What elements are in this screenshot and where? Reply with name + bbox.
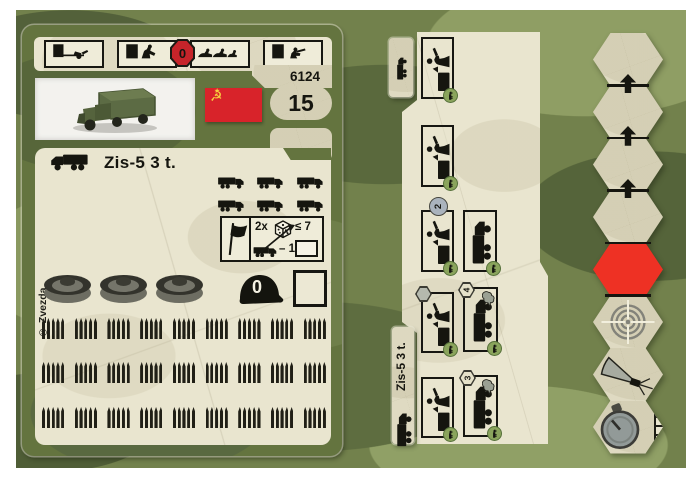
badge-value: 3 <box>462 376 472 381</box>
ammo-round <box>225 407 228 428</box>
flag-icon <box>222 218 251 260</box>
ammo-round <box>206 318 209 339</box>
ammo-round <box>47 318 50 339</box>
ammo-round <box>56 362 59 383</box>
ammo-round <box>159 407 162 428</box>
ammo-round <box>313 407 316 428</box>
result-box <box>295 240 318 257</box>
ammo-round <box>323 407 326 428</box>
ammo-round <box>308 318 311 339</box>
smoke-icon <box>482 379 495 396</box>
action-box-crawl <box>190 40 250 68</box>
ammo-round <box>140 318 143 339</box>
ammo-round <box>318 362 321 383</box>
ammo-group <box>173 407 195 429</box>
ammo-group <box>304 362 326 384</box>
ammo-round <box>52 362 55 383</box>
transport-capacity-icons <box>215 175 328 217</box>
ammo-round <box>52 407 55 428</box>
ammo-round <box>187 362 190 383</box>
truck-icon <box>215 175 249 194</box>
order-action-box-2 <box>421 125 454 187</box>
ammo-group <box>238 318 260 340</box>
ammo-round <box>238 318 241 339</box>
ammo-round <box>173 362 176 383</box>
load-icon <box>413 395 463 421</box>
ammo-round <box>313 362 316 383</box>
ammo-round <box>318 318 321 339</box>
octagon-value: 0 <box>172 41 193 65</box>
ammo-round <box>117 362 120 383</box>
truck-icon <box>253 244 278 255</box>
ammo-round <box>187 407 190 428</box>
load-icon <box>413 55 463 81</box>
modifier-value: – 1 <box>279 243 295 255</box>
ammo-round <box>192 407 195 428</box>
ammo-round <box>75 362 78 383</box>
ammo-round <box>75 407 78 428</box>
ammo-round <box>122 362 125 383</box>
model-photo <box>35 78 195 140</box>
ammo-round <box>178 362 181 383</box>
push-icon <box>121 43 173 64</box>
ammo-round <box>308 407 311 428</box>
ammo-round <box>89 318 92 339</box>
red-hex-edge-line <box>605 294 651 297</box>
ammo-round <box>318 407 321 428</box>
cover-icon <box>267 43 319 64</box>
ammo-round <box>280 407 283 428</box>
circle-badge: 2 <box>429 197 448 216</box>
truck-icon <box>458 395 504 418</box>
points-value: 15 <box>288 90 314 117</box>
order-action-box-1 <box>421 37 454 99</box>
ammo-group <box>107 407 129 429</box>
ammo-round <box>56 407 59 428</box>
ammo-round <box>127 362 130 383</box>
green-dot-truck-icon <box>487 426 502 441</box>
ammo-row <box>42 362 326 384</box>
ammo-round <box>220 362 223 383</box>
arrow-up-icon <box>619 126 637 148</box>
ammo-round <box>257 407 260 428</box>
ammo-round <box>276 362 279 383</box>
dice-multiplier: 2x <box>255 221 268 233</box>
helmet-value: 0 <box>252 277 262 298</box>
ammo-round <box>225 362 228 383</box>
ammo-round <box>238 362 241 383</box>
ammo-round <box>112 407 115 428</box>
ammo-round <box>210 318 213 339</box>
set-number: 6124 <box>290 69 320 84</box>
ammo-round <box>154 407 157 428</box>
ammo-round <box>178 318 181 339</box>
ammo-round <box>173 318 176 339</box>
ammo-round <box>79 318 82 339</box>
punchboard-sheet: 0 6124 ★ ☭ 15 <box>0 0 700 480</box>
ammo-round <box>215 362 218 383</box>
ammo-round <box>276 407 279 428</box>
badge-value: 2 <box>433 204 444 209</box>
ammo-round <box>192 362 195 383</box>
ammo-group <box>206 318 228 340</box>
ammo-round <box>182 318 185 339</box>
ammo-round <box>187 318 190 339</box>
ammo-round <box>271 318 274 339</box>
ammo-round <box>61 318 64 339</box>
load-icon <box>413 310 463 336</box>
ammo-group <box>304 318 326 340</box>
ammo-round <box>210 362 213 383</box>
order-card-top-tab <box>389 38 413 97</box>
ammo-round <box>304 407 307 428</box>
wheel-token <box>100 275 147 303</box>
ammo-group <box>173 362 195 384</box>
ammo-round <box>75 318 78 339</box>
ammo-round <box>308 362 311 383</box>
ammo-round <box>145 407 148 428</box>
truck-icon <box>254 198 288 217</box>
ammo-round <box>150 407 153 428</box>
ammo-round <box>178 407 181 428</box>
ammo-round <box>238 407 241 428</box>
dice-threshold: ≤ 7 <box>295 221 311 233</box>
ammo-round <box>56 318 59 339</box>
panel-notch <box>283 148 331 160</box>
truck-icon <box>294 198 328 217</box>
truck-icon <box>294 175 328 194</box>
ammo-round <box>271 407 274 428</box>
order-action-box-4 <box>463 210 497 272</box>
ammo-group <box>107 362 129 384</box>
ammo-round <box>84 318 87 339</box>
ammo-group <box>42 407 64 429</box>
ammo-group <box>140 318 162 340</box>
ammo-round <box>248 407 251 428</box>
helmet-icon: 0 <box>237 271 284 309</box>
ammo-round <box>42 318 45 339</box>
order-card-name-tab: Zis-5 3 t. <box>392 327 414 444</box>
crawl-icon <box>194 43 246 64</box>
wheel-tokens <box>44 275 203 303</box>
ammo-round <box>220 407 223 428</box>
movement-hex-track <box>593 33 663 453</box>
ammo-group <box>271 318 293 340</box>
fire-arc-icon <box>596 351 660 399</box>
ammo-group <box>140 362 162 384</box>
ammo-group <box>140 407 162 429</box>
ammo-group <box>42 318 64 340</box>
order-action-box-6: 4 <box>463 287 498 352</box>
ammo-round <box>248 362 251 383</box>
arrow-up-icon <box>619 74 637 96</box>
ammo-round <box>117 407 120 428</box>
ammo-group <box>75 362 97 384</box>
load-icon <box>413 228 463 254</box>
ammo-round <box>206 362 209 383</box>
ammo-round <box>122 318 125 339</box>
ammo-round <box>122 407 125 428</box>
smoke-icon <box>482 291 495 308</box>
ammo-round <box>52 318 55 339</box>
hammer-sickle-icon: ☭ <box>210 89 223 103</box>
ammo-round <box>173 407 176 428</box>
ammo-round <box>112 362 115 383</box>
ammo-round <box>61 407 64 428</box>
ammo-round <box>243 362 246 383</box>
ammo-round <box>304 362 307 383</box>
ammo-round <box>220 318 223 339</box>
combat-table: 2x ≤ 7 – 1 <box>220 216 324 262</box>
truck-icon <box>254 175 288 194</box>
stopwatch-icon <box>588 403 652 451</box>
ammo-round <box>182 407 185 428</box>
ammo-group <box>75 318 97 340</box>
green-dot-truck-icon <box>443 176 458 191</box>
ammo-round <box>84 407 87 428</box>
ammo-round <box>140 407 143 428</box>
ammo-group <box>271 362 293 384</box>
ammo-round <box>206 407 209 428</box>
target-icon <box>596 298 660 346</box>
load-icon <box>413 143 463 169</box>
ammo-round <box>285 318 288 339</box>
truck-icon <box>45 151 92 176</box>
ammo-group <box>238 407 260 429</box>
points-pill: 15 <box>270 86 332 120</box>
ammo-round <box>42 362 45 383</box>
ammo-round <box>253 407 256 428</box>
ammo-group <box>42 362 64 384</box>
ammo-round <box>304 318 307 339</box>
ammo-round <box>42 407 45 428</box>
ammo-round <box>257 362 260 383</box>
card-main-panel: Zis-5 3 t. © Zvezda 2x ≤ 7 – 1 0 <box>35 148 331 445</box>
unit-title-rotated: Zis-5 3 t. <box>394 331 412 403</box>
ammo-group <box>107 318 129 340</box>
ammo-round <box>47 407 50 428</box>
ammo-round <box>215 407 218 428</box>
soviet-flag: ★ ☭ <box>205 88 262 122</box>
ammo-round <box>127 407 130 428</box>
ammo-round <box>215 318 218 339</box>
empty-square-slot <box>293 270 327 307</box>
order-action-box-7 <box>421 377 454 438</box>
green-dot-truck-icon <box>443 88 458 103</box>
order-action-box-3: 2 <box>421 210 454 272</box>
ammo-row <box>42 318 326 340</box>
ammo-group <box>173 318 195 340</box>
ammo-round <box>276 318 279 339</box>
title-row: Zis-5 3 t. <box>45 152 176 174</box>
ammo-round <box>107 318 110 339</box>
ammo-round <box>210 407 213 428</box>
set-number-tab: 6124 <box>252 65 332 88</box>
ammo-round <box>145 318 148 339</box>
green-dot-truck-icon <box>443 427 458 442</box>
truck-icon <box>215 198 249 217</box>
order-action-box-5 <box>421 292 454 353</box>
ammo-round <box>94 407 97 428</box>
green-dot-truck-icon <box>486 261 501 276</box>
green-dot-truck-icon <box>443 261 458 276</box>
ammo-round <box>79 407 82 428</box>
ammo-row <box>42 407 326 429</box>
ammo-round <box>248 318 251 339</box>
ammo-round <box>61 362 64 383</box>
ammo-group <box>206 362 228 384</box>
ammo-round <box>253 318 256 339</box>
wheel-token <box>156 275 203 303</box>
ammo-round <box>107 362 110 383</box>
ammo-round <box>89 362 92 383</box>
ammo-group <box>271 407 293 429</box>
truck-icon <box>458 308 504 331</box>
ammo-round <box>182 362 185 383</box>
red-hex <box>593 243 663 296</box>
truck-photo-illustration <box>55 83 175 135</box>
ammo-round <box>290 362 293 383</box>
ammo-round <box>94 362 97 383</box>
timer-hex <box>593 401 663 454</box>
ammo-round <box>290 318 293 339</box>
ammo-round <box>140 362 143 383</box>
ammo-round <box>117 318 120 339</box>
ammo-round <box>154 362 157 383</box>
ammo-round <box>112 318 115 339</box>
arrow-up-icon <box>619 179 637 201</box>
red-hex-edge-line <box>605 242 651 245</box>
ammo-group <box>75 407 97 429</box>
ammo-round <box>154 318 157 339</box>
ammo-round <box>159 318 162 339</box>
ammo-round <box>323 362 326 383</box>
target-hex <box>593 296 663 349</box>
ammo-round <box>79 362 82 383</box>
unit-title: Zis-5 3 t. <box>104 153 176 173</box>
dice-icon <box>272 218 294 240</box>
ammo-round <box>150 362 153 383</box>
action-box-push <box>117 40 177 68</box>
ammo-round <box>150 318 153 339</box>
ammo-round <box>290 407 293 428</box>
red-octagon-badge: 0 <box>170 39 195 67</box>
ammo-round <box>94 318 97 339</box>
green-dot-truck-icon <box>443 342 458 357</box>
ammo-round <box>107 407 110 428</box>
green-dot-truck-icon <box>487 341 502 356</box>
ammo-round <box>243 407 246 428</box>
ammo-round <box>225 318 228 339</box>
fire-arc-hex <box>593 348 663 401</box>
ammo-round <box>243 318 246 339</box>
ammo-round <box>323 318 326 339</box>
badge-value: 4 <box>461 288 471 293</box>
ammo-round <box>257 318 260 339</box>
ammo-round <box>84 362 87 383</box>
ammo-round <box>159 362 162 383</box>
order-action-box-8: 3 <box>463 375 498 437</box>
ammo-round <box>285 362 288 383</box>
ammo-group <box>238 362 260 384</box>
ammo-round <box>127 318 130 339</box>
ammo-round <box>271 362 274 383</box>
ammo-round <box>47 362 50 383</box>
ammo-round <box>89 407 92 428</box>
ammo-round <box>145 362 148 383</box>
tow-icon <box>48 43 100 64</box>
ammo-group <box>206 407 228 429</box>
ammo-round <box>280 318 283 339</box>
ammo-round <box>253 362 256 383</box>
unit-card: 0 6124 ★ ☭ 15 <box>22 25 342 456</box>
ammo-round <box>285 407 288 428</box>
wheel-token <box>44 275 91 303</box>
action-box-take-cover <box>263 40 323 68</box>
action-box-tow <box>44 40 104 68</box>
ammo-round <box>192 318 195 339</box>
ammo-group <box>304 407 326 429</box>
ammo-round <box>313 318 316 339</box>
truck-icon <box>457 230 503 253</box>
ammo-round <box>280 362 283 383</box>
